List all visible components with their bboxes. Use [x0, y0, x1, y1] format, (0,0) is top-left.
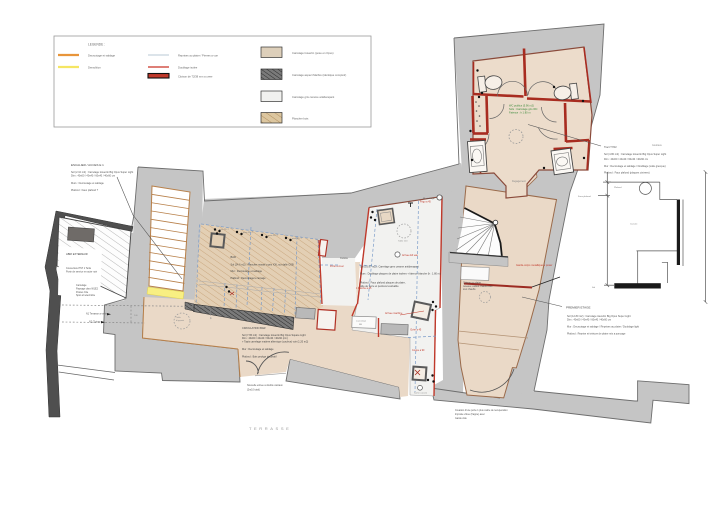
svg-text:Coupe a 90: Coupe a 90 — [412, 349, 425, 352]
svg-text:+ Tapis carrelage matiere alle: + Tapis carrelage matiere allemique (cou… — [242, 340, 308, 343]
svg-text:Sol: Sol — [592, 287, 596, 289]
svg-text:Plafond : Faux plafond ?: Plafond : Faux plafond ? — [71, 189, 99, 192]
svg-text:Plafond : Bois peckge decorati: Plafond : Bois peckge decoratif — [242, 356, 277, 359]
svg-text:Dim : 40x60 / 40x40 / 60x40 /: Dim : 40x60 / 40x40 / 60x40 / 40x60 cm — [567, 318, 611, 321]
svg-text:Imposte vitree (frappe) avec: Imposte vitree (frappe) avec — [455, 413, 486, 416]
svg-text:Reprises au platre / Pierres a: Reprises au platre / Pierres a vue — [178, 54, 218, 58]
svg-text:Dim : 40x60 / 40x40 / 60x40 /: Dim : 40x60 / 40x40 / 60x40 / 40x60 cm — [604, 158, 648, 161]
svg-text:Cuisine: Cuisine — [630, 224, 638, 226]
svg-text:Faux plafond: Faux plafond — [578, 196, 591, 198]
svg-text:Tract TYR2: Tract TYR2 — [604, 146, 617, 149]
svg-text:Cuisine: Cuisine — [340, 257, 349, 260]
svg-text:Garde-corps metallique a poser: Garde-corps metallique a poser — [516, 263, 552, 267]
svg-text:N2 Cloture: N2 Cloture — [89, 321, 101, 324]
svg-text:Dim : 40x60 / 40x40 / 60x40 /: Dim : 40x60 / 40x40 / 60x40 / 40x60 cm — [71, 174, 115, 177]
svg-text:LEGENDE :: LEGENDE : — [88, 43, 105, 47]
svg-text:Carrelage gris cerame antidera: Carrelage gris cerame antiderapant — [292, 95, 335, 99]
svg-text:TERRASSE: TERRASSE — [249, 426, 291, 431]
svg-text:Murs : Decroutage et sablage: Murs : Decroutage et sablage — [71, 182, 104, 185]
svg-text:N1 Terrasse a venir: N1 Terrasse a venir — [86, 313, 107, 316]
svg-text:prise 2P+T: prise 2P+T — [268, 235, 279, 237]
svg-text:Degagement: Degagement — [512, 180, 526, 183]
svg-text:Porte a creer: Porte a creer — [330, 265, 344, 268]
svg-text:CIRCULATION BAR: CIRCULATION BAR — [242, 326, 266, 330]
svg-text:Plafond: Plafond — [614, 187, 622, 189]
svg-text:prise 2P+T: prise 2P+T — [292, 238, 303, 240]
svg-text:Sortie cuisine: Sortie cuisine — [414, 392, 428, 395]
svg-text:Creation d'une porte 1 plus ca: Creation d'une porte 1 plus cadre de rec… — [455, 409, 508, 412]
svg-text:Arrivee machine: Arrivee machine — [385, 312, 403, 315]
svg-text:Doublage isolee: Doublage isolee — [178, 66, 198, 70]
svg-text:ESCALIER / ACCES E 1: ESCALIER / ACCES E 1 — [71, 163, 104, 167]
svg-text:Gouttiere: Gouttiere — [652, 144, 663, 147]
svg-text:Mur : Decroutage et sablage /: Mur : Decroutage et sablage / Reprises a… — [567, 326, 639, 329]
svg-text:Faience : h 1.80 m: Faience : h 1.80 m — [509, 111, 530, 115]
svg-text:Nouvelle entree a double vanta: Nouvelle entree a double vantaux — [247, 384, 283, 387]
svg-text:Demolition: Demolition — [88, 66, 101, 70]
svg-text:Carrelage travertin (pose en O: Carrelage travertin (pose en Opus) — [292, 51, 334, 55]
svg-text:Evier a 45: Evier a 45 — [411, 329, 422, 332]
svg-text:Plancher bois: Plancher bois — [292, 117, 309, 121]
svg-text:Mur : Decroutage et sablage: Mur : Decroutage et sablage — [242, 348, 274, 351]
svg-text:Cloison de 72/38 mm a creer: Cloison de 72/38 mm a creer — [178, 75, 213, 79]
svg-text:Sol (4.80 m2) : Carrelage trav: Sol (4.80 m2) : Carrelage travertin Big … — [604, 153, 667, 156]
svg-text:Carrelage aspect Marbre (ident: Carrelage aspect Marbre (identique compt… — [292, 73, 346, 77]
svg-text:prise 2P+T: prise 2P+T — [243, 232, 254, 234]
svg-text:Spot art electricite: Spot art electricite — [76, 294, 96, 297]
svg-text:Sol (24.6 m2) : Plancher massi: Sol (24.6 m2) : Plancher massif a prix X… — [231, 263, 294, 266]
svg-text:(2m10 total): (2m10 total) — [247, 389, 260, 392]
svg-text:Frigo a 45: Frigo a 45 — [420, 201, 431, 204]
svg-text:Table 120: Table 120 — [398, 241, 408, 243]
svg-text:Garde vide: Garde vide — [455, 417, 467, 420]
svg-text:Plafond : Reprise et teinture: Plafond : Reprise et teinture de platre … — [567, 333, 626, 336]
svg-text:Mur : Decroutage et sablage: Mur : Decroutage et sablage — [231, 270, 263, 273]
svg-text:1 Marche a 45: 1 Marche a 45 — [356, 287, 372, 290]
svg-text:prise 2P+T: prise 2P+T — [219, 229, 230, 231]
svg-text:Porte de service en acier noir: Porte de service en acier noir — [66, 270, 97, 273]
svg-text:Plafond : Decroutage le lamage: Plafond : Decroutage le lamage — [231, 277, 267, 280]
svg-text:Lave-linge: Lave-linge — [356, 321, 367, 323]
svg-text:tour chauffe: tour chauffe — [463, 288, 476, 291]
svg-text:WC publics (5.96 m2): WC publics (5.96 m2) — [509, 104, 534, 108]
svg-text:Arrivee EF eau: Arrivee EF eau — [402, 254, 419, 257]
svg-text:BAR: BAR — [231, 255, 236, 259]
svg-text:ABRI EXTERIEUR: ABRI EXTERIEUR — [66, 252, 88, 256]
svg-text:Decroutage et sablage: Decroutage et sablage — [88, 54, 116, 58]
svg-text:Murs : Doublage plaques de pla: Murs : Doublage plaques de platre isolee… — [360, 273, 441, 276]
svg-text:NI stockage: NI stockage — [423, 197, 435, 200]
svg-text:Mur : Decroutage et sablage /: Mur : Decroutage et sablage / Doublage (… — [604, 165, 666, 168]
svg-text:PREMIER ETAGE: PREMIER ETAGE — [566, 306, 590, 310]
svg-text:Sols : Carrelage gris WC: Sols : Carrelage gris WC — [509, 107, 538, 111]
svg-text:d'appoint: d'appoint — [176, 319, 185, 322]
svg-text:Sol (16.87 m2) : Carrelage gre: Sol (16.87 m2) : Carrelage gres cerame a… — [360, 266, 419, 269]
svg-text:Plafond : Faux plafond (plaque: Plafond : Faux plafond (plaques cintrees… — [604, 172, 650, 175]
